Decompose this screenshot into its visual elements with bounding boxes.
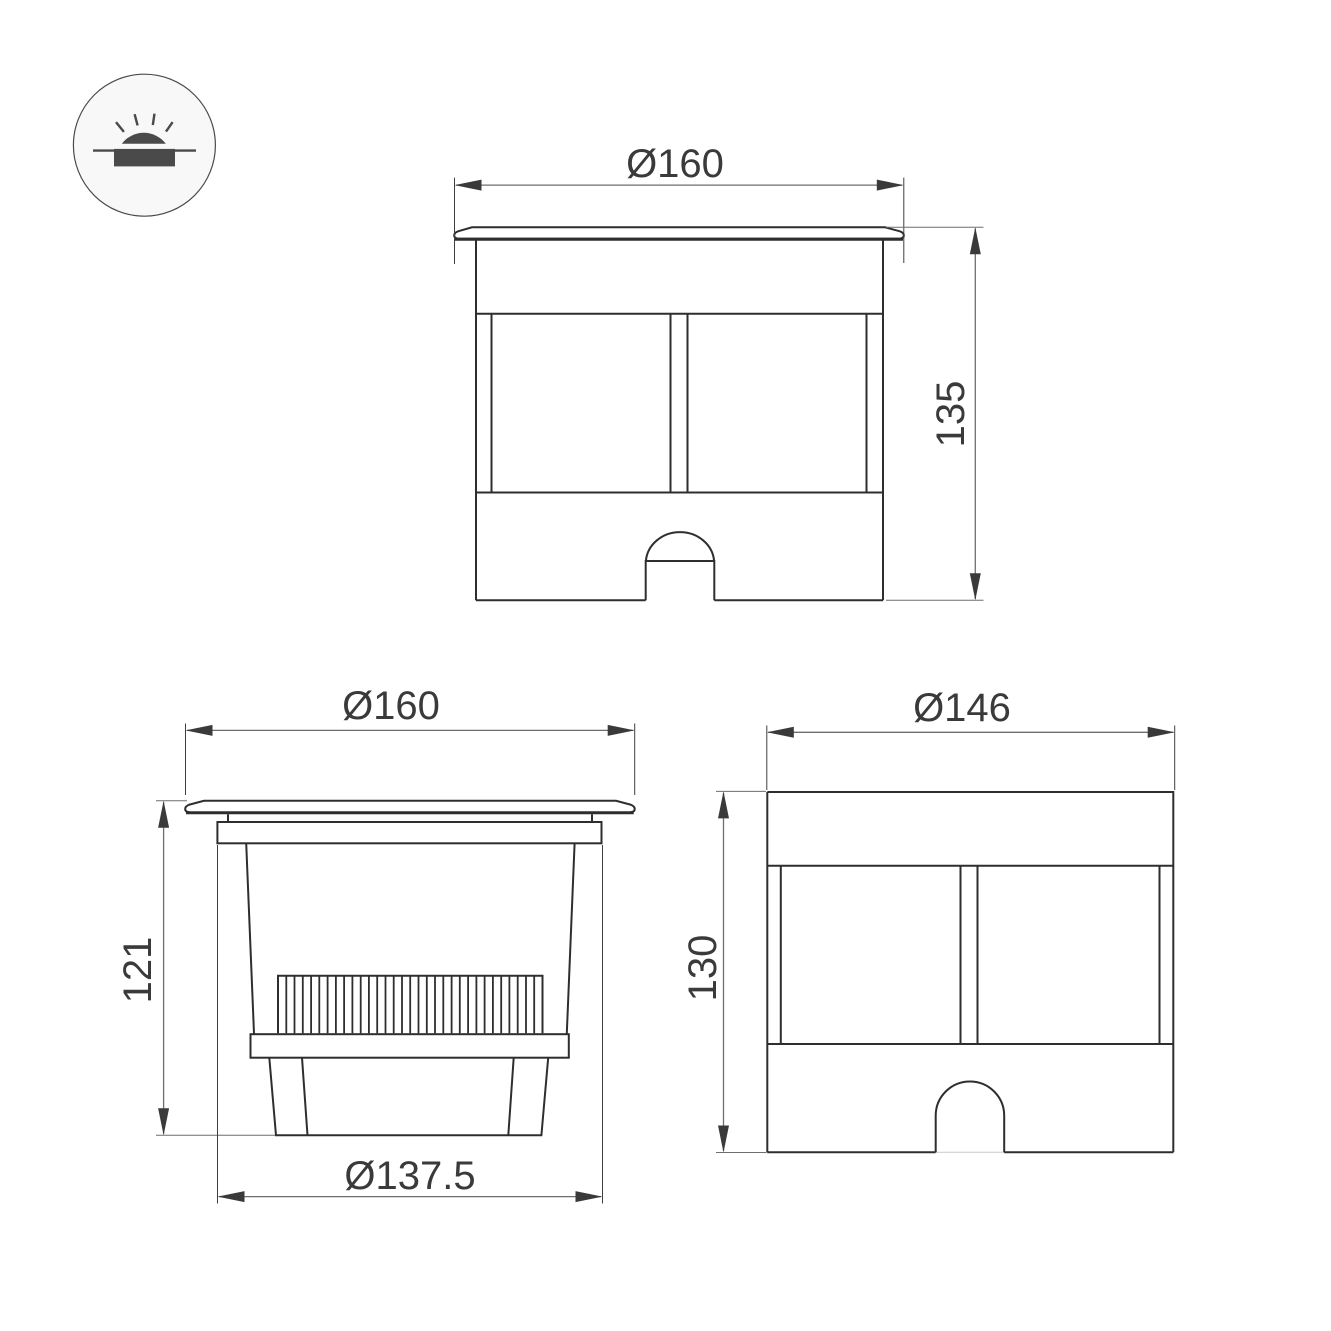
svg-text:Ø160: Ø160 bbox=[626, 142, 724, 186]
svg-text:Ø146: Ø146 bbox=[913, 686, 1011, 730]
svg-text:Ø160: Ø160 bbox=[342, 684, 440, 728]
svg-text:Ø137.5: Ø137.5 bbox=[344, 1154, 475, 1198]
svg-text:130: 130 bbox=[681, 935, 725, 1002]
svg-text:121: 121 bbox=[116, 937, 160, 1004]
svg-text:135: 135 bbox=[929, 381, 973, 448]
